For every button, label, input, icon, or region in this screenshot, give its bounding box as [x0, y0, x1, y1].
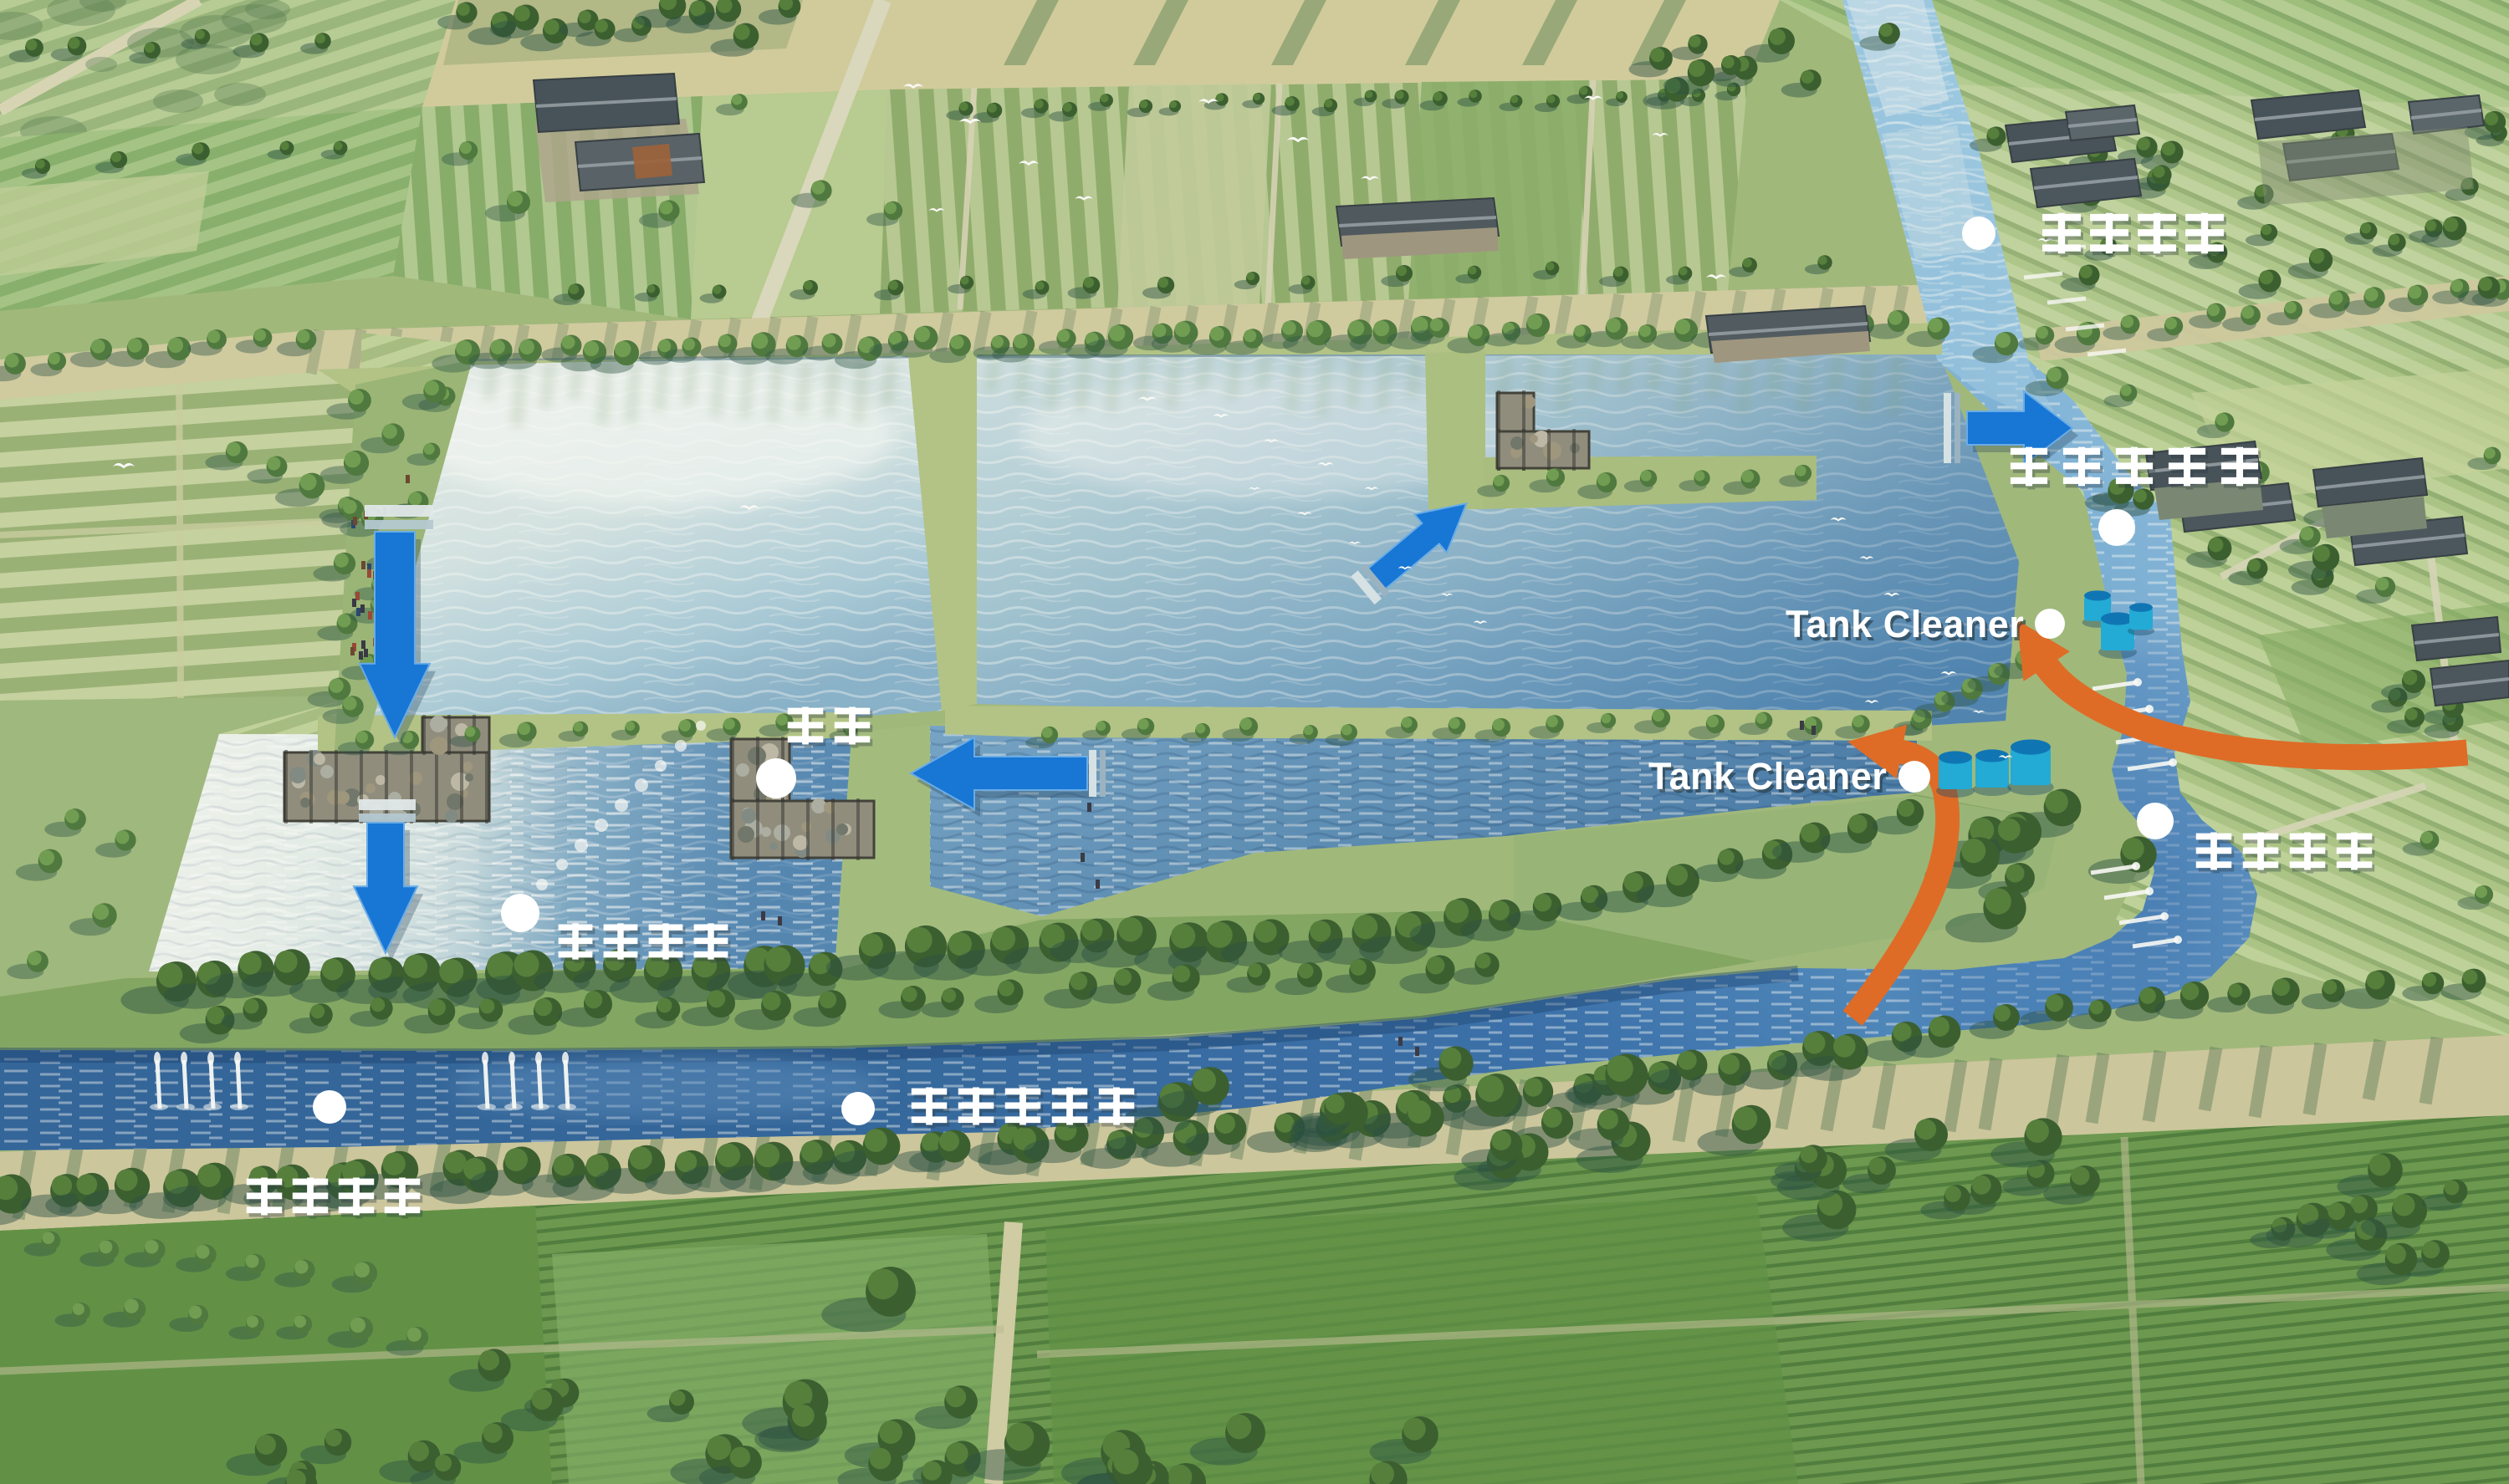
svg-text:Tank Cleaner: Tank Cleaner: [1786, 603, 2024, 645]
svg-text:Tank Cleaner: Tank Cleaner: [1648, 755, 1887, 798]
